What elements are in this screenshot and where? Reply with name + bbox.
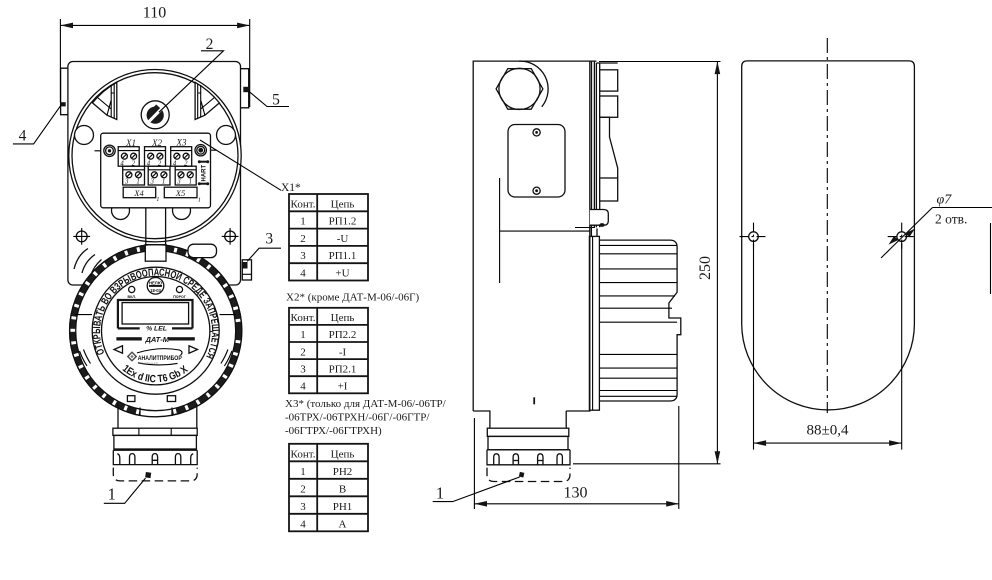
svg-text:3: 3 [150, 178, 155, 185]
svg-text:X5: X5 [175, 188, 185, 198]
svg-text:X4: X4 [133, 188, 144, 198]
svg-text:-06ГТРХ/-06ГТРХН): -06ГТРХ/-06ГТРХН) [285, 425, 382, 437]
svg-text:2: 2 [300, 483, 306, 495]
svg-text:3: 3 [124, 178, 129, 185]
svg-text:4: 4 [300, 268, 306, 280]
svg-text:1: 1 [436, 484, 444, 503]
svg-text:Конт.: Конт. [291, 198, 316, 210]
svg-text:Конт.: Конт. [291, 312, 316, 324]
svg-text:3: 3 [300, 501, 306, 513]
svg-text:X2* (кроме ДАТ-М-06/-06Г): X2* (кроме ДАТ-М-06/-06Г) [286, 292, 419, 304]
svg-text:1: 1 [300, 466, 306, 478]
svg-text:НЕЛЮ: НЕЛЮ [149, 280, 163, 285]
svg-text:РП2.2: РП2.2 [329, 329, 357, 341]
svg-text:-06ТРХ/-06ТРХН/-06Г/-06ГТР/: -06ТРХ/-06ТРХН/-06Г/-06ГТР/ [285, 412, 430, 424]
svg-text:% LEL: % LEL [146, 326, 167, 333]
svg-text:В: В [339, 483, 346, 495]
svg-text:4: 4 [19, 128, 27, 145]
svg-text:φ7: φ7 [937, 193, 953, 208]
svg-text:X1*: X1* [281, 182, 301, 194]
svg-text:2: 2 [300, 346, 306, 358]
svg-text:Цепь: Цепь [331, 448, 355, 460]
svg-text:1: 1 [156, 196, 159, 203]
svg-text:А: А [339, 518, 347, 530]
svg-text:1: 1 [136, 178, 139, 185]
svg-text:1: 1 [108, 485, 116, 504]
svg-text:110: 110 [143, 5, 166, 22]
svg-text:X3* (только для ДАТ-М-06/-06Т: X3* (только для ДАТ-М-06/-06ТР/ [285, 398, 447, 410]
svg-text:18-03: 18-03 [150, 288, 161, 293]
svg-text:2: 2 [300, 233, 306, 245]
svg-text:ВКЛ.: ВКЛ. [128, 295, 136, 299]
svg-text:+U: +U [335, 268, 349, 280]
svg-text:1: 1 [300, 216, 306, 228]
svg-text:Цепь: Цепь [331, 198, 355, 210]
svg-text:1: 1 [189, 178, 192, 185]
svg-text:5: 5 [272, 91, 280, 108]
svg-text:4: 4 [300, 518, 306, 530]
svg-text:СифлекС: СифлекС [141, 361, 159, 365]
svg-text:Цепь: Цепь [331, 312, 355, 324]
svg-text:1: 1 [198, 197, 201, 204]
svg-text:3: 3 [265, 231, 273, 248]
svg-text:РП1.2: РП1.2 [329, 216, 357, 228]
svg-text:88±0,4: 88±0,4 [807, 423, 849, 439]
svg-text:HART: HART [202, 165, 208, 182]
svg-text:+I: +I [338, 381, 348, 393]
svg-text:3: 3 [300, 250, 306, 262]
svg-text:Конт.: Конт. [291, 448, 316, 460]
svg-text:РН1: РН1 [333, 501, 353, 513]
svg-text:3: 3 [176, 178, 181, 185]
svg-text:ПОРОГ: ПОРОГ [173, 295, 186, 299]
svg-text:2 отв.: 2 отв. [935, 212, 967, 227]
svg-text:1: 1 [300, 329, 306, 341]
svg-text:-I: -I [339, 346, 347, 358]
svg-text:-U: -U [337, 233, 349, 245]
svg-text:4: 4 [300, 381, 306, 393]
svg-text:130: 130 [564, 485, 588, 502]
svg-text:РП2.1: РП2.1 [329, 363, 357, 375]
svg-text:250: 250 [697, 256, 714, 280]
svg-text:ДАТ-М: ДАТ-М [144, 335, 169, 344]
svg-text:РН2: РН2 [333, 466, 353, 478]
svg-text:1: 1 [162, 178, 165, 185]
svg-text:3: 3 [300, 363, 306, 375]
svg-text:РП1.1: РП1.1 [329, 250, 357, 262]
